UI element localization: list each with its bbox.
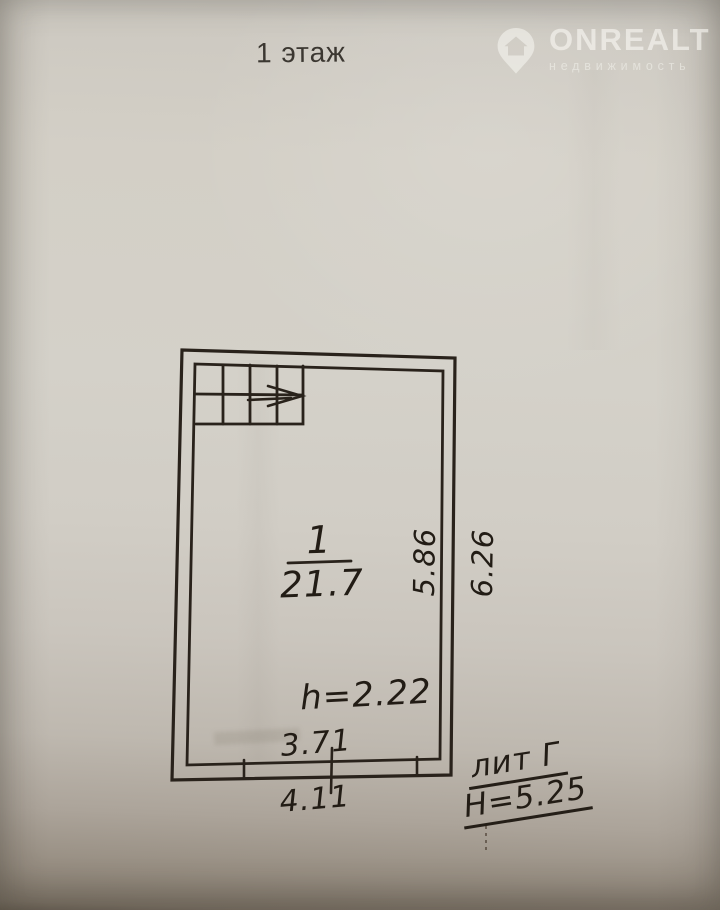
room-area-label: 21.7 — [279, 566, 364, 605]
dimension-outer-depth: 6.26 — [468, 528, 498, 597]
scanned-floor-plan-page: 1 этаж ONREALT недвижимость — [0, 0, 720, 910]
staircase — [196, 365, 303, 424]
floor-plan-drawing — [0, 0, 720, 910]
dimension-inner-width: 3.71 — [279, 726, 352, 762]
ceiling-height-label: h=2.22 — [299, 675, 432, 716]
dimension-inner-depth: 5.86 — [410, 527, 440, 596]
room-number-label: 1 — [306, 521, 332, 560]
dimension-outer-width: 4.11 — [278, 782, 351, 818]
